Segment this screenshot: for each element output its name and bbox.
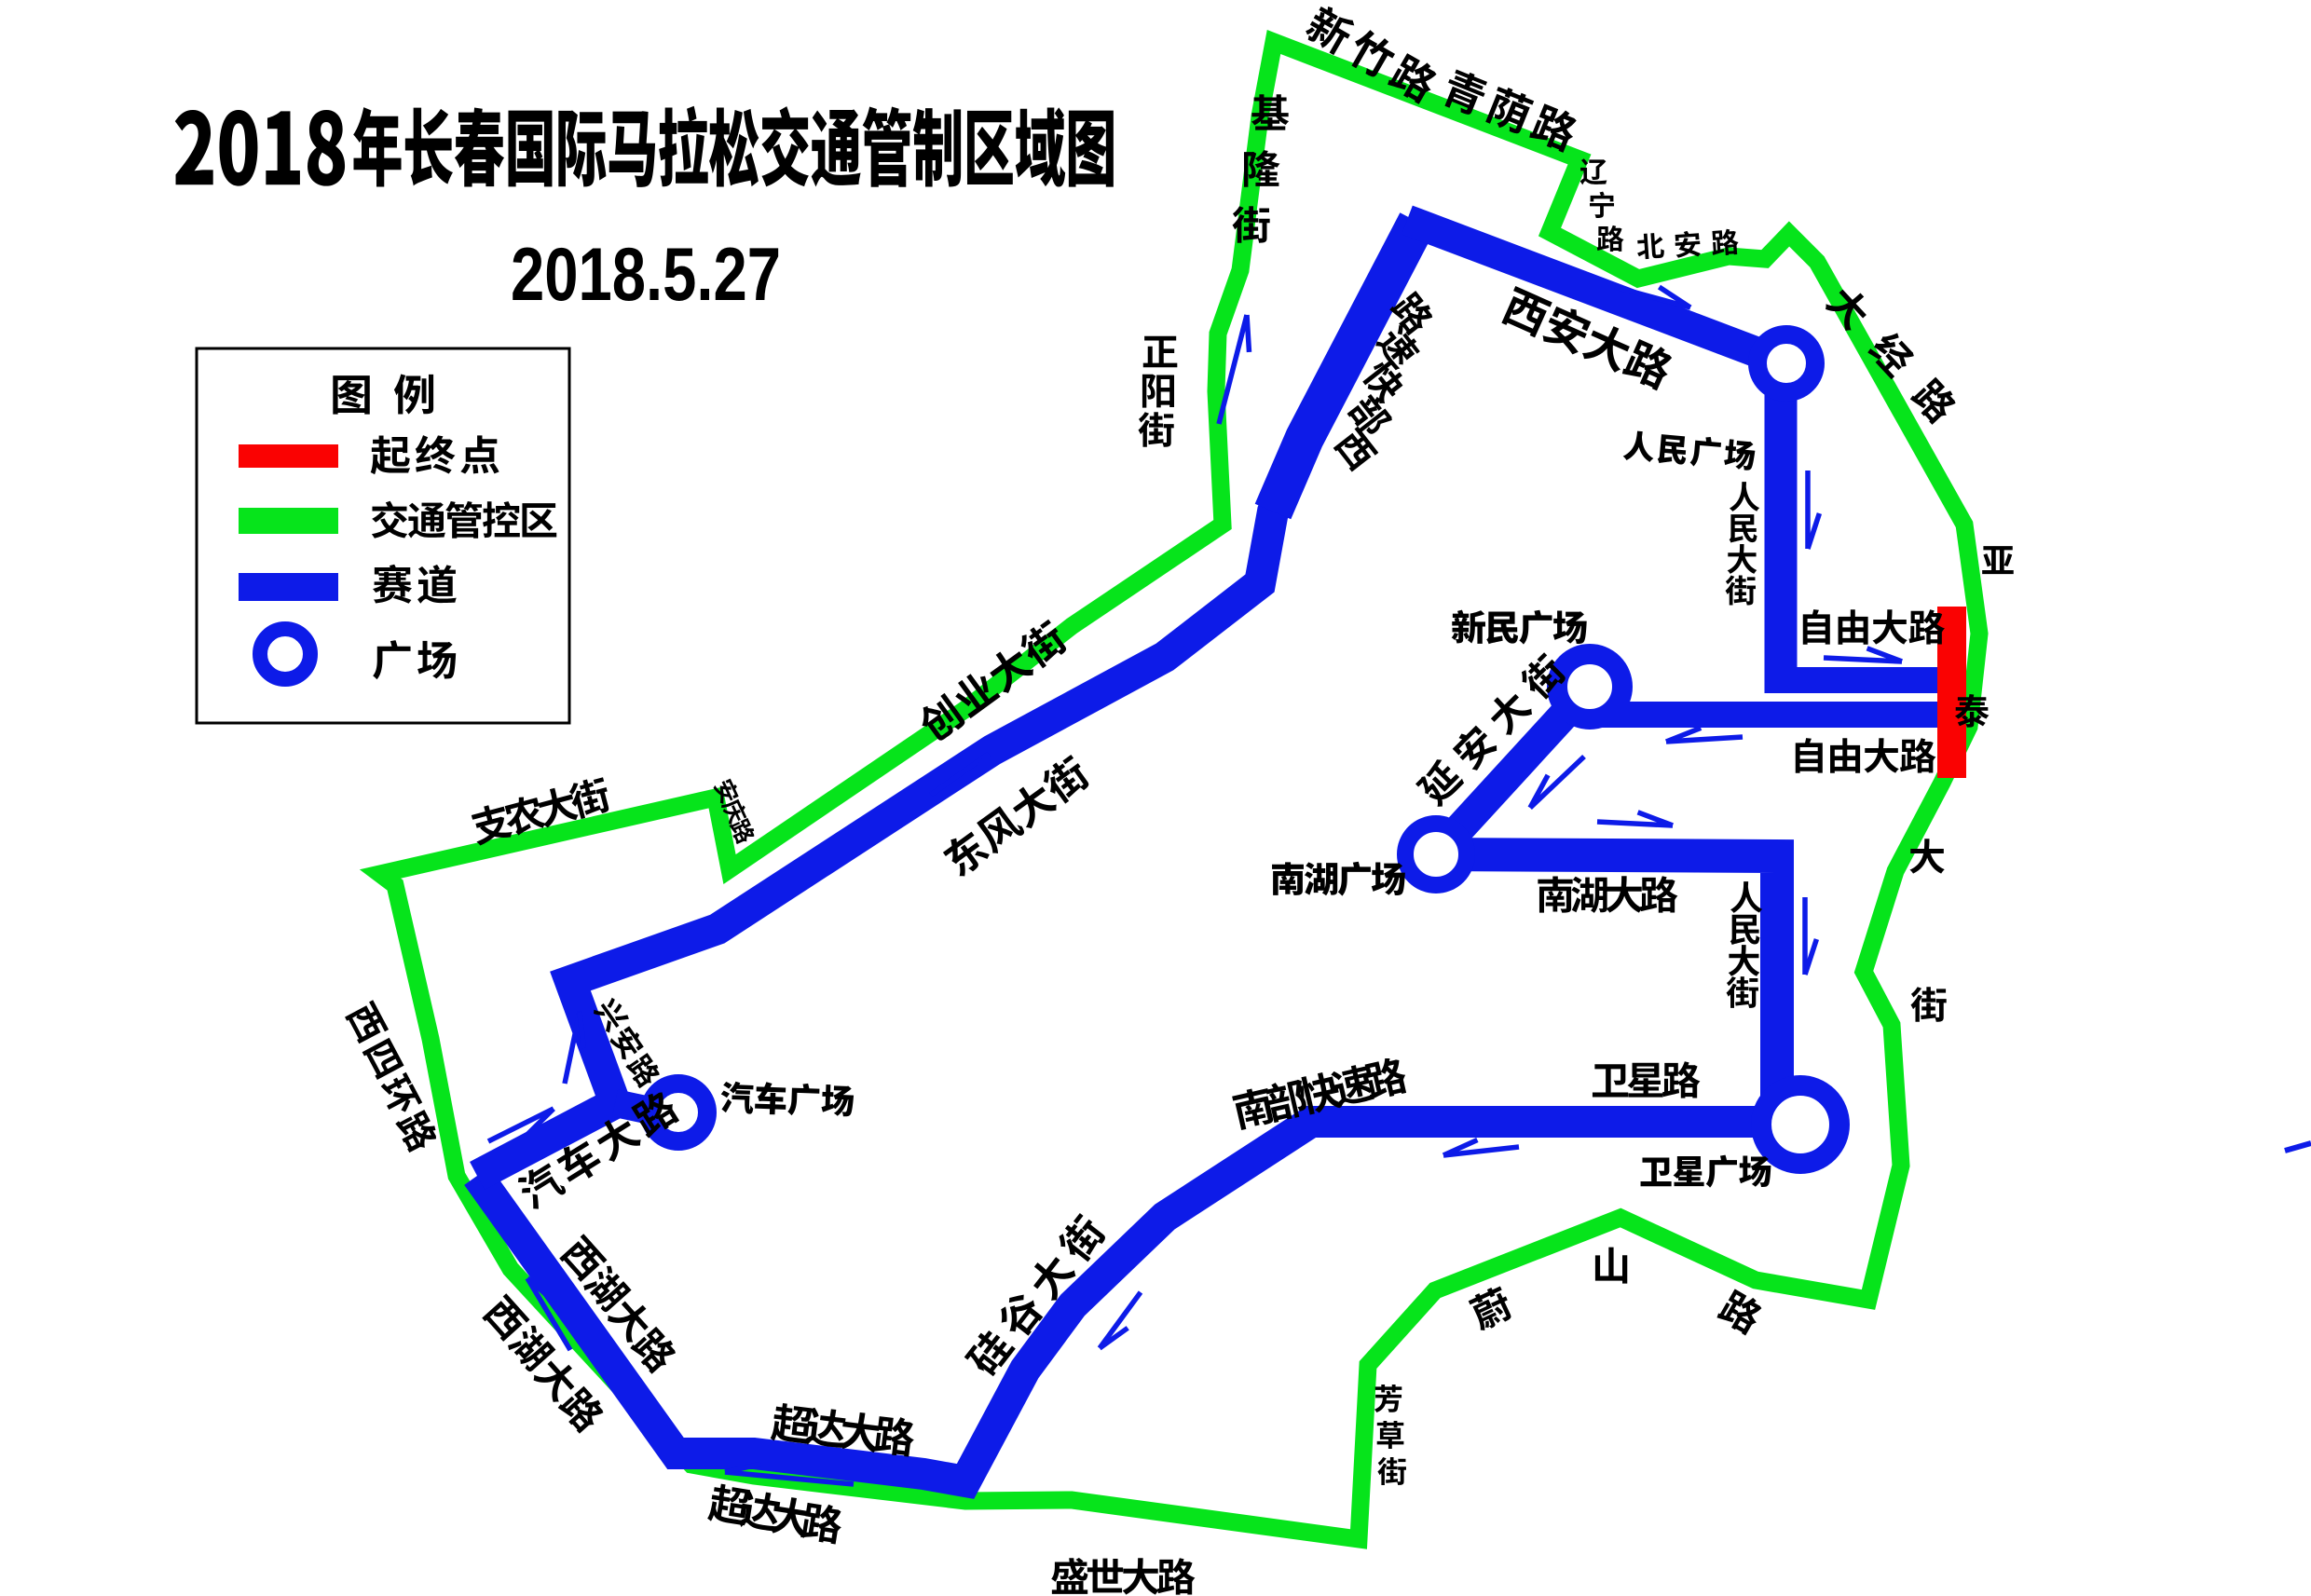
svg-text:2018.5.27: 2018.5.27: [511, 233, 781, 317]
